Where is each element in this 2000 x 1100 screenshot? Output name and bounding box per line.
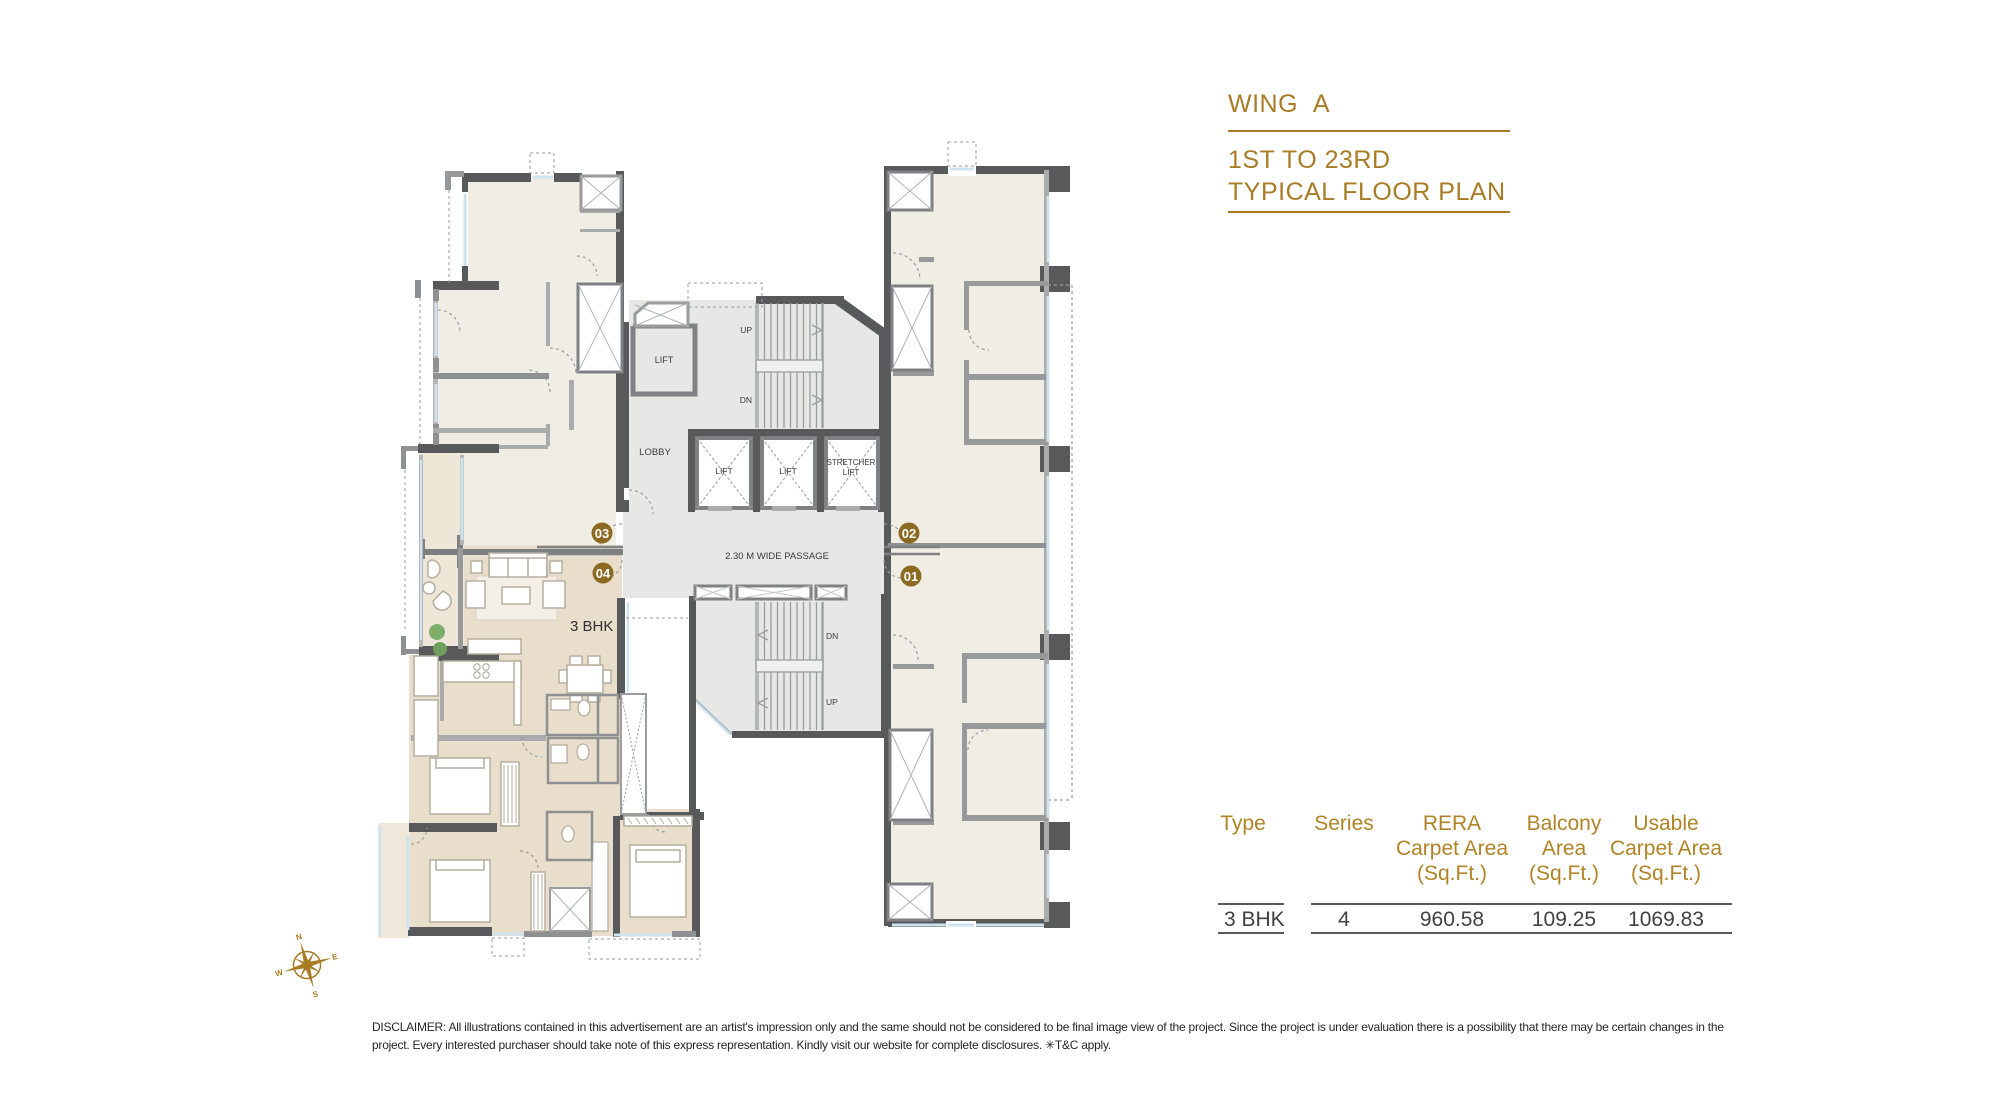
svg-text:E: E	[331, 952, 339, 962]
svg-text:LIFT: LIFT	[843, 468, 860, 477]
svg-text:03: 03	[595, 526, 609, 541]
svg-text:LOBBY: LOBBY	[639, 447, 671, 458]
svg-text:W: W	[274, 968, 284, 979]
svg-text:04: 04	[596, 566, 611, 581]
svg-text:3 BHK: 3 BHK	[570, 618, 613, 635]
svg-text:UP: UP	[826, 697, 838, 707]
svg-text:LIFT: LIFT	[655, 355, 674, 365]
svg-text:N: N	[295, 932, 303, 942]
svg-text:01: 01	[904, 569, 918, 584]
svg-text:2.30 M WIDE PASSAGE: 2.30 M WIDE PASSAGE	[725, 551, 829, 562]
svg-text:LIFT: LIFT	[779, 466, 796, 476]
svg-text:DN: DN	[740, 395, 752, 405]
svg-text:S: S	[312, 989, 320, 999]
svg-text:UP: UP	[740, 325, 752, 335]
svg-text:DN: DN	[826, 631, 838, 641]
svg-text:LIFT: LIFT	[715, 466, 732, 476]
svg-text:02: 02	[902, 526, 916, 541]
svg-text:STRETCHER: STRETCHER	[827, 458, 876, 467]
